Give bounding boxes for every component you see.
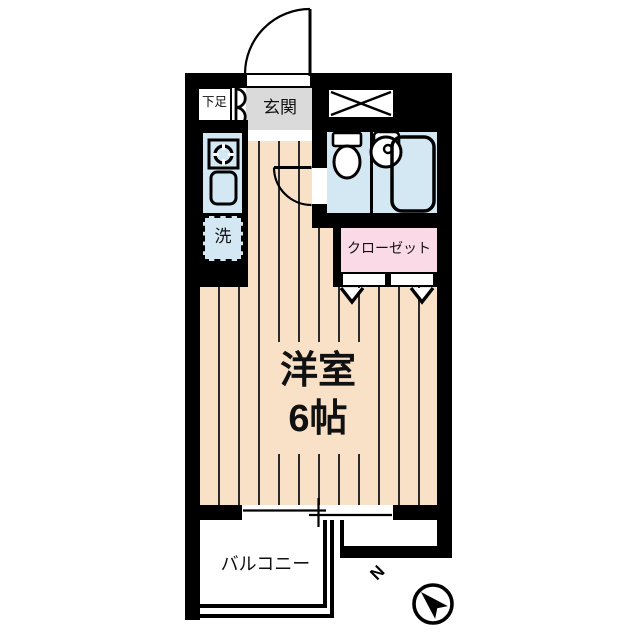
plan-linework: N (0, 0, 640, 640)
balcony-label: バルコニー (204, 555, 327, 574)
closet-bifold-icon (341, 288, 433, 302)
shoe-cabinet-doors-icon (236, 87, 245, 126)
main-room-label: 洋室 (258, 352, 378, 392)
shoe-storage-label: 下足 (199, 96, 230, 109)
entrance-door-icon (245, 9, 310, 76)
compass-icon: N (366, 562, 452, 623)
toilet-icon (333, 133, 361, 178)
floor-plan: N 下足 玄関 洗 クローゼット 洋室 6帖 バルコニー (0, 0, 640, 640)
laundry-label: 洗 (203, 228, 243, 246)
stove-icon (209, 140, 238, 168)
sliding-window-icon (243, 498, 392, 527)
vent-box-x-icon (331, 92, 391, 115)
kitchen-sink-icon (211, 172, 236, 204)
room-door-icon (274, 168, 312, 206)
entrance-label: 玄関 (248, 99, 312, 117)
main-room-size: 6帖 (258, 400, 378, 440)
closet-label: クローゼット (341, 241, 437, 256)
compass-north-label: N (366, 562, 388, 584)
